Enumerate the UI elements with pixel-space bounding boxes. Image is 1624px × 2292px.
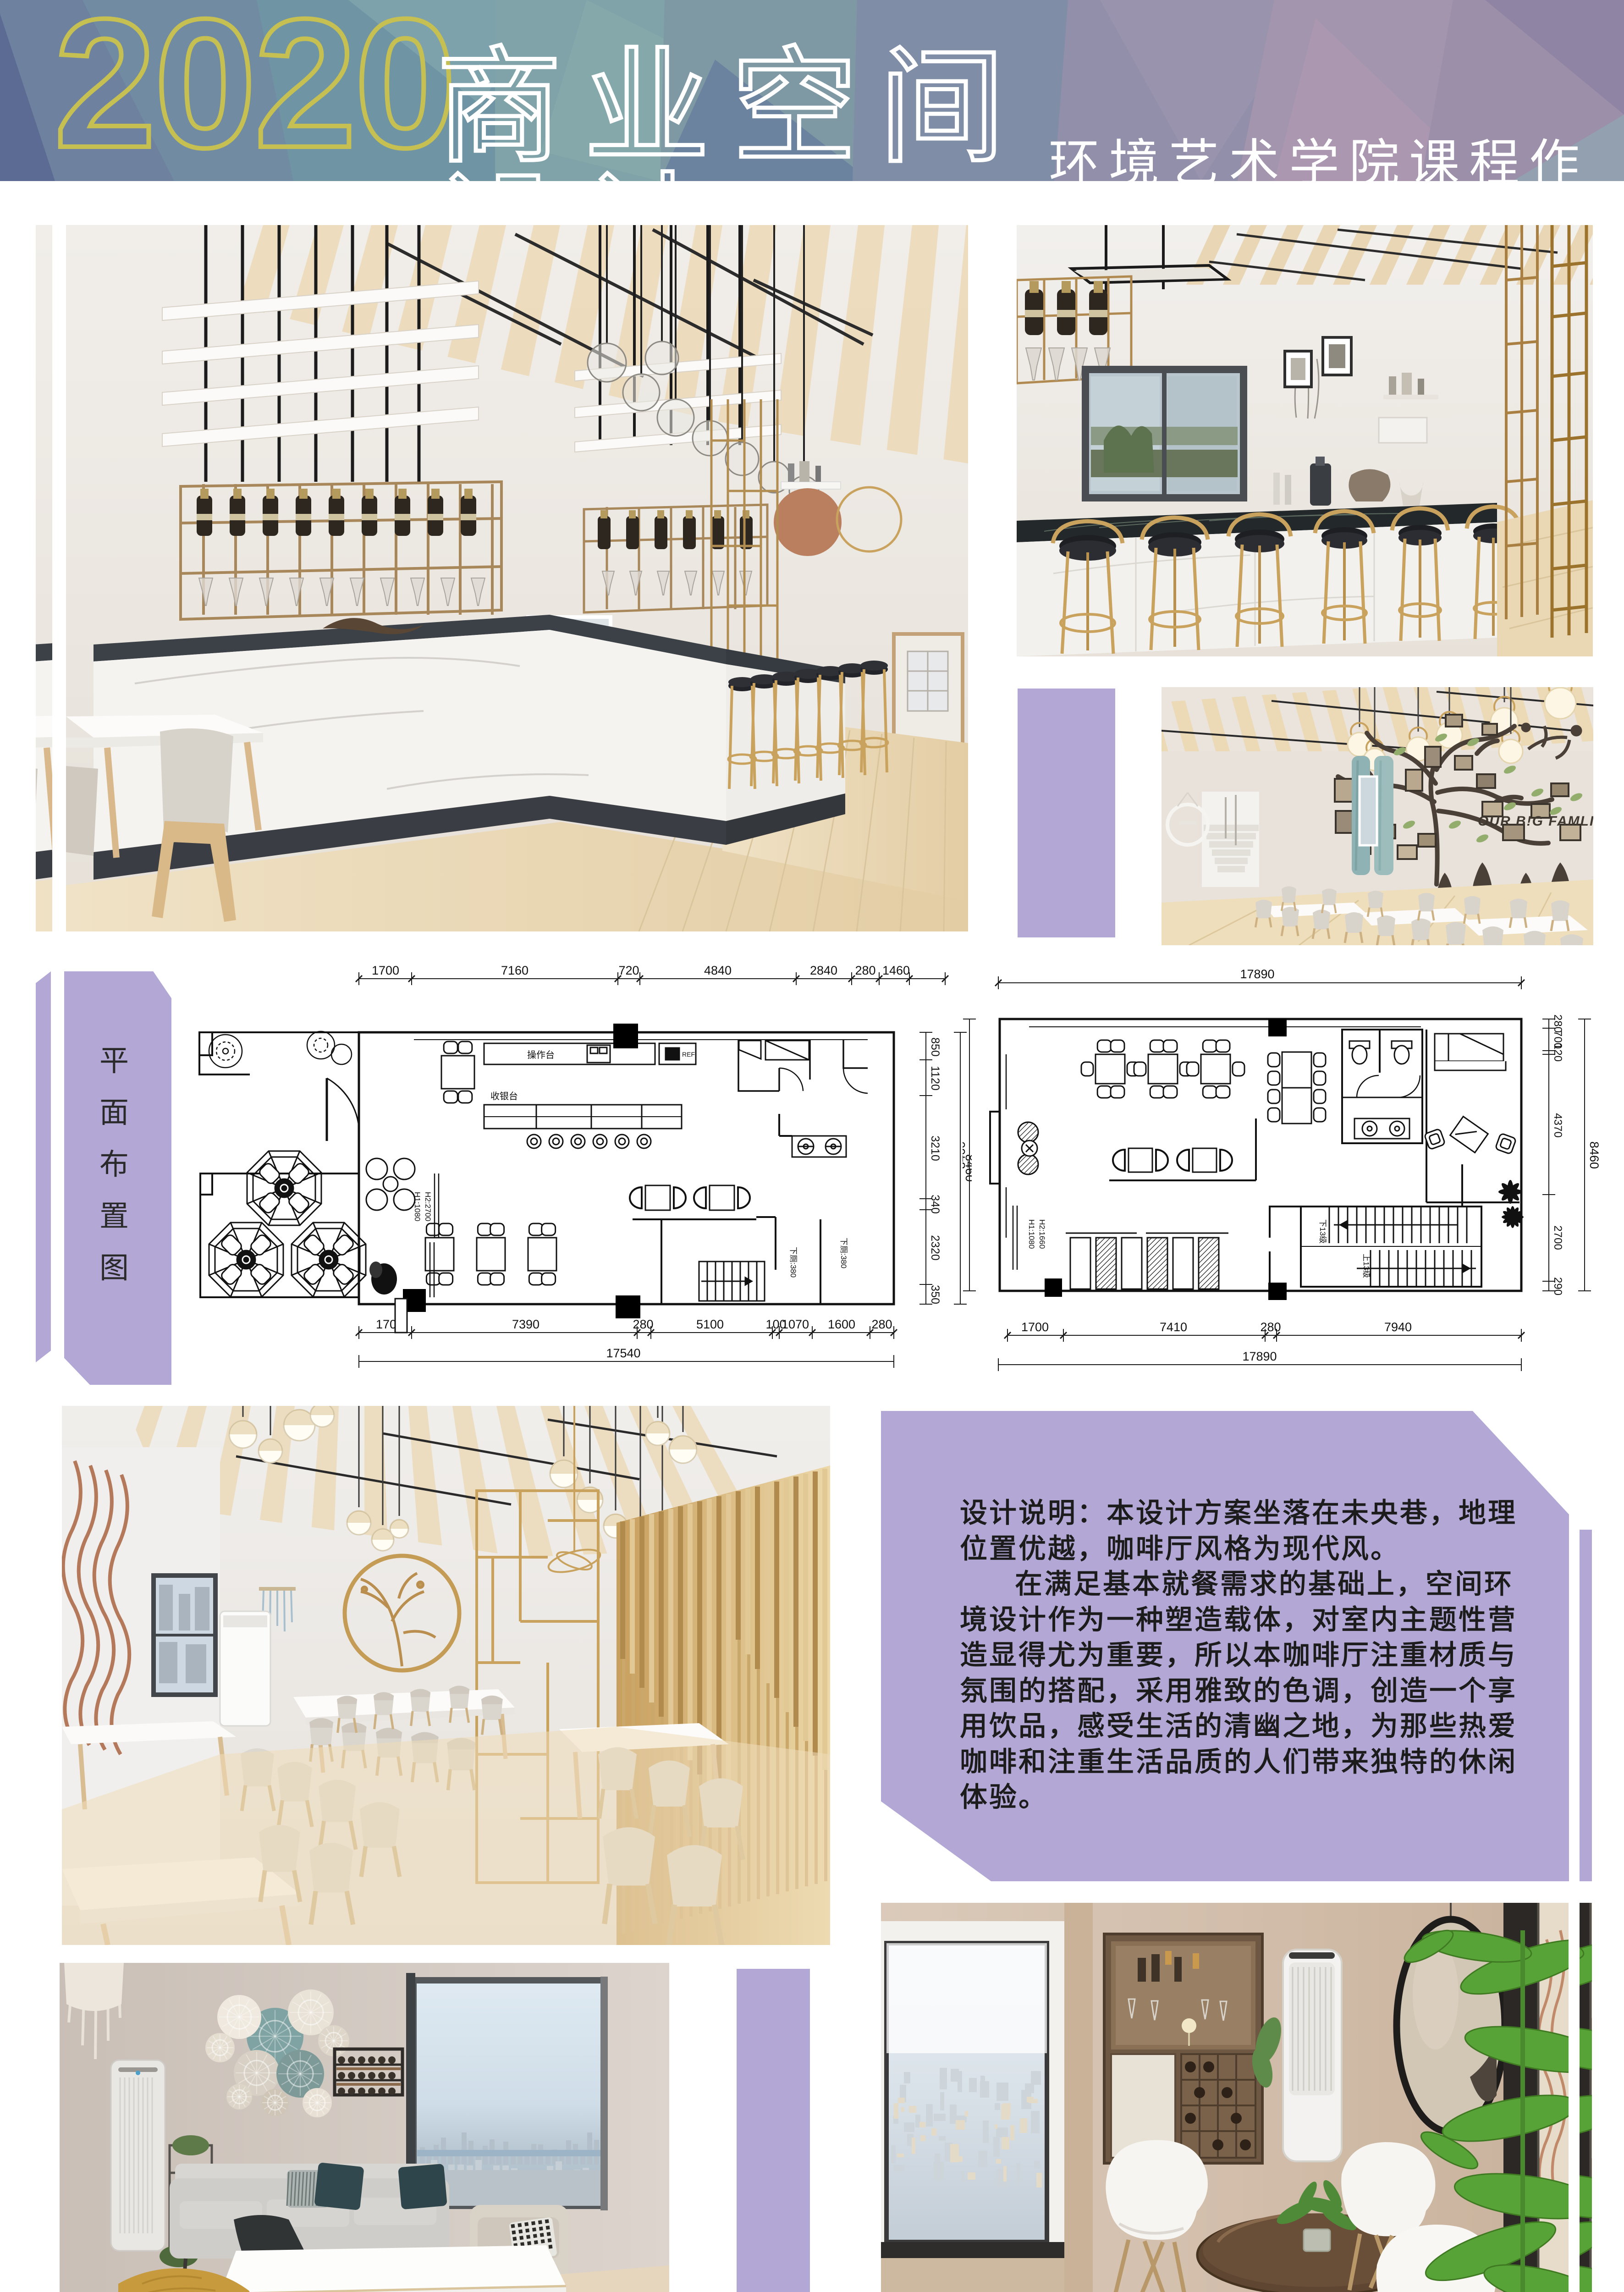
svg-text:H1:1080: H1:1080 xyxy=(413,1192,422,1221)
svg-text:OUR B!G FAMLIY: OUR B!G FAMLIY xyxy=(1478,814,1593,829)
svg-text:720: 720 xyxy=(618,965,639,977)
svg-text:7160: 7160 xyxy=(501,965,528,977)
svg-text:3210: 3210 xyxy=(929,1135,941,1161)
svg-text:7390: 7390 xyxy=(512,1317,539,1331)
svg-text:H2:1660: H2:1660 xyxy=(1038,1219,1046,1249)
svg-text:下厕:380: 下厕:380 xyxy=(839,1238,848,1268)
svg-text:H1:1080: H1:1080 xyxy=(1027,1219,1036,1249)
svg-text:280: 280 xyxy=(871,1317,892,1331)
svg-text:下厕:380: 下厕:380 xyxy=(789,1247,798,1278)
svg-text:2840: 2840 xyxy=(810,965,837,977)
svg-text:850: 850 xyxy=(929,1037,941,1057)
svg-text:1700: 1700 xyxy=(372,965,399,977)
svg-text:1460: 1460 xyxy=(882,965,910,977)
svg-text:8460: 8460 xyxy=(963,1141,968,1169)
svg-text:7410: 7410 xyxy=(1160,1320,1187,1334)
svg-text:350: 350 xyxy=(929,1285,941,1304)
svg-text:2700: 2700 xyxy=(1552,1225,1564,1250)
svg-text:上13级: 上13级 xyxy=(1362,1254,1371,1278)
svg-text:H2:2700: H2:2700 xyxy=(424,1192,432,1221)
svg-text:2320: 2320 xyxy=(929,1235,941,1261)
svg-text:1070: 1070 xyxy=(782,1317,809,1331)
svg-text:8460: 8460 xyxy=(1587,1141,1601,1169)
svg-text:280: 280 xyxy=(1260,1320,1281,1334)
svg-text:17890: 17890 xyxy=(1242,1350,1277,1363)
svg-text:5100: 5100 xyxy=(696,1317,724,1331)
svg-text:4370: 4370 xyxy=(1552,1113,1564,1137)
svg-text:REF: REF xyxy=(682,1051,695,1058)
svg-text:4840: 4840 xyxy=(704,965,732,977)
svg-text:120: 120 xyxy=(1552,1043,1564,1062)
svg-text:7940: 7940 xyxy=(1384,1320,1412,1334)
svg-text:280: 280 xyxy=(633,1317,653,1331)
svg-text:17540: 17540 xyxy=(606,1346,640,1360)
svg-text:收银台: 收银台 xyxy=(490,1091,518,1102)
svg-text:340: 340 xyxy=(929,1195,941,1214)
svg-text:操作台: 操作台 xyxy=(527,1050,555,1060)
svg-text:1600: 1600 xyxy=(828,1317,855,1331)
svg-text:17890: 17890 xyxy=(1240,967,1274,981)
svg-text:280: 280 xyxy=(855,965,875,977)
svg-text:290: 290 xyxy=(1552,1277,1564,1295)
svg-text:1700: 1700 xyxy=(1021,1320,1049,1334)
svg-text:下13级: 下13级 xyxy=(1318,1219,1327,1244)
svg-text:1120: 1120 xyxy=(929,1066,941,1091)
